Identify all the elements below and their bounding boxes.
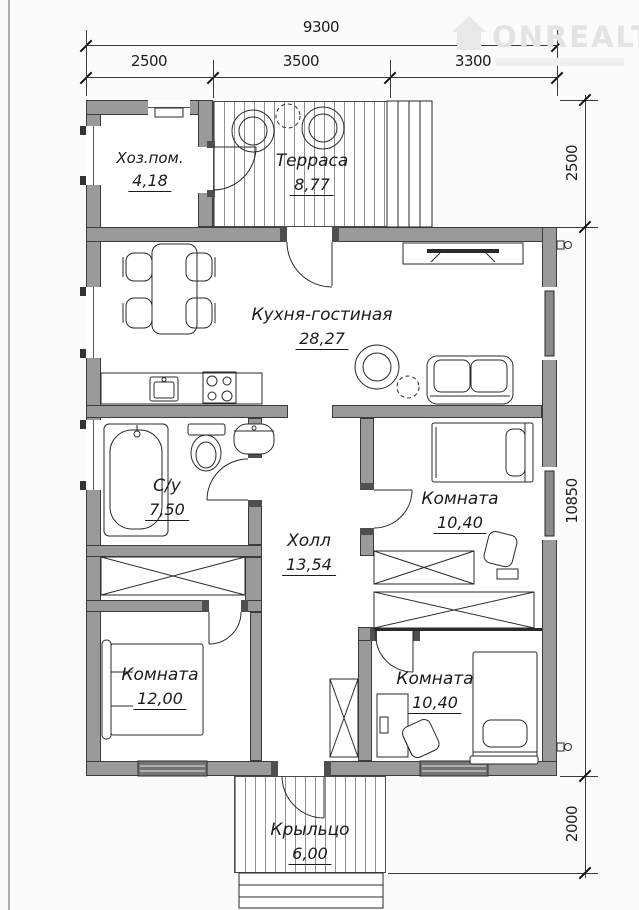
wardrobe-icon xyxy=(330,679,358,757)
room-label-bedroom-bl: Комната 12,00 xyxy=(121,665,198,710)
room-name: Кухня-гостиная xyxy=(251,305,392,325)
dining-chairs-icon xyxy=(123,253,215,328)
door-bedroom-br xyxy=(376,630,413,672)
room-label-bathroom: С/у 7,50 xyxy=(145,476,189,521)
porch-steps xyxy=(239,873,383,908)
room-name: Холл xyxy=(282,531,336,551)
sofa-icon xyxy=(427,356,513,404)
room-name: Терраса xyxy=(276,151,349,171)
terrace-armchair-icon xyxy=(302,107,344,149)
room-label-bedroom-tr: Комната 10,40 xyxy=(421,489,498,534)
wardrobe-icon xyxy=(101,557,245,595)
room-area: 13,54 xyxy=(282,555,336,576)
room-area: 10,40 xyxy=(433,513,487,534)
room-label-utility: Хоз.пом. 4,18 xyxy=(116,149,183,192)
door-utility-terrace xyxy=(213,147,256,190)
floor-plan-canvas: ONREALT xyxy=(0,0,639,910)
bench-icon xyxy=(497,569,518,579)
room-label-porch: Крыльцо 6,00 xyxy=(270,820,349,865)
room-area: 6,00 xyxy=(288,844,332,865)
dining-table-icon xyxy=(152,244,197,334)
bed-icon xyxy=(432,423,533,482)
window-bars-right xyxy=(545,291,554,536)
room-area: 7,50 xyxy=(145,500,189,521)
window-sill-marks xyxy=(80,126,86,490)
room-area: 28,27 xyxy=(295,329,349,350)
bed-icon xyxy=(470,652,538,764)
plan-drawing-layer xyxy=(0,0,639,910)
window-bottom-bedroom-bl xyxy=(138,761,207,776)
room-label-terrace: Терраса 8,77 xyxy=(276,151,349,196)
room-area: 8,77 xyxy=(290,175,334,196)
room-name: Комната xyxy=(421,489,498,509)
toilet-icon xyxy=(188,424,225,471)
door-jamb-caps xyxy=(202,141,420,776)
room-name: Крыльцо xyxy=(270,820,349,840)
room-label-bedroom-br: Комната 10,40 xyxy=(396,669,473,714)
room-area: 12,00 xyxy=(133,689,187,710)
room-name: Комната xyxy=(121,665,198,685)
door-terrace-living xyxy=(287,242,332,287)
utility-vent-icon xyxy=(155,108,183,117)
door-bedroom-tr xyxy=(374,490,412,528)
room-area: 10,40 xyxy=(408,693,462,714)
armchair-icon xyxy=(355,345,399,389)
door-bedroom-bl xyxy=(209,612,241,644)
side-table-icon xyxy=(397,376,419,398)
wardrobe-icon xyxy=(374,551,474,584)
door-entry-porch xyxy=(282,776,324,818)
room-name: С/у xyxy=(145,476,189,496)
room-name: Комната xyxy=(396,669,473,689)
room-area: 4,18 xyxy=(128,171,172,192)
room-label-hall: Холл 13,54 xyxy=(282,531,336,576)
wardrobe-icon xyxy=(374,592,542,630)
room-label-kitchen-living: Кухня-гостиная 28,27 xyxy=(251,305,392,350)
terrace-table-icon xyxy=(276,104,300,128)
washbasin-icon xyxy=(234,424,274,454)
chair-icon xyxy=(483,530,519,568)
room-name: Хоз.пом. xyxy=(116,149,183,167)
kitchen-counter xyxy=(101,373,262,404)
tv-console-icon xyxy=(403,243,523,264)
terrace-steps xyxy=(387,101,432,227)
terrace-armchair-icon xyxy=(232,110,274,152)
vent-icons-right-wall xyxy=(557,241,572,751)
